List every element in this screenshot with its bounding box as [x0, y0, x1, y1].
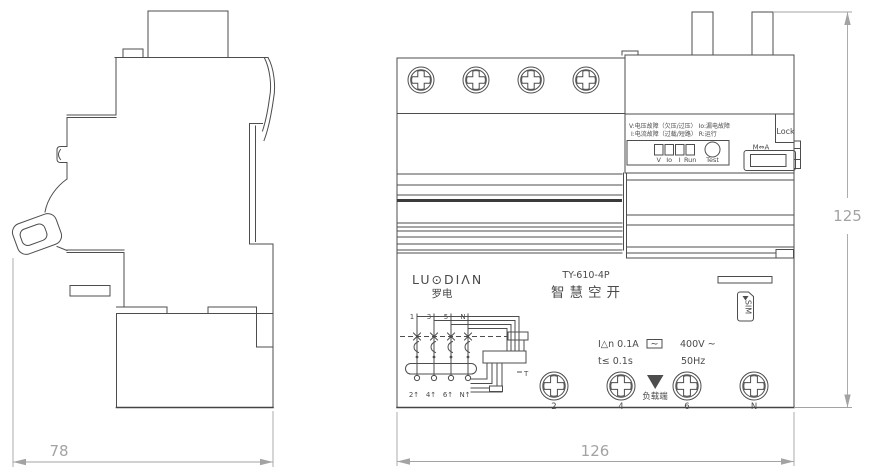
- dimension-78: 78: [13, 258, 273, 467]
- side-details: [57, 147, 273, 348]
- voltage-rating: 400V ~: [680, 339, 716, 350]
- terminal-screw-icon: [573, 67, 599, 93]
- dim-78-lines: [13, 258, 273, 467]
- led-label-io: Io: [666, 156, 672, 164]
- led-indicator-i: [676, 145, 685, 156]
- model-number: TY-610-4P: [561, 270, 610, 281]
- schematic-terminal-6: 6↑: [443, 391, 453, 399]
- bottom-terminal-label-4: 4: [618, 402, 623, 412]
- t-terminal-label: T: [523, 370, 529, 378]
- schematic-terminal-2: 2↑: [409, 391, 419, 399]
- handle-outer: [10, 211, 64, 257]
- test-button-label: Test: [705, 156, 719, 164]
- wave-type-symbol: ~: [651, 339, 659, 350]
- dim-height-front: 125: [833, 207, 862, 225]
- frequency-rating: 50Hz: [681, 356, 705, 367]
- schematic-arc-hooks: [414, 342, 470, 353]
- bottom-terminal-label-n: N: [751, 402, 757, 412]
- side-right-curve: [45, 58, 275, 213]
- load-side-marker: 负载端: [642, 375, 668, 402]
- load-side-label: 负载端: [642, 391, 668, 402]
- ratings-block: I△n 0.1A ~ 400V ~ t≤ 0.1s 50Hz: [598, 339, 716, 367]
- sim-label: SIM: [744, 300, 753, 314]
- trip-time-rating: t≤ 0.1s: [598, 356, 633, 367]
- mode-slider-knob: [751, 155, 787, 167]
- terminal-screw-icon: [540, 372, 568, 400]
- led-label-run: Run: [684, 156, 696, 164]
- bottom-terminal-label-2: 2: [551, 402, 556, 412]
- schematic-poles: [417, 314, 468, 375]
- residual-current-rating: I△n 0.1A: [598, 339, 639, 350]
- schematic-node: [433, 356, 436, 359]
- led-label-v: V: [656, 156, 661, 164]
- rocker-lines: [397, 173, 794, 258]
- test-button: [705, 142, 720, 157]
- led-indicator-run: [686, 145, 695, 156]
- breaker-drawing-svg: 78: [0, 0, 871, 473]
- schematic-node: [450, 356, 453, 359]
- dim-width-front: 126: [581, 442, 610, 460]
- front-body-outline: [397, 58, 794, 408]
- bottom-terminal-label-6: 6: [684, 402, 689, 412]
- schematic-terminal-circle: [414, 375, 419, 380]
- brand-block: LU⊙DIΛN 罗电 TY-610-4P 智慧空开: [412, 270, 625, 301]
- sim-slot-opening: [718, 277, 772, 284]
- load-triangle-icon: [647, 375, 664, 389]
- wiring-schematic: 1 3 5 N T 2↑ 4↑ 6↑: [400, 313, 529, 399]
- lock-track-icon: [794, 141, 801, 169]
- legend-line-2: I:电流故障（过载/短路） R:运行: [631, 130, 717, 138]
- trip-unit-box: [483, 351, 526, 363]
- terminal-screw-icon: [673, 372, 701, 400]
- terminal-screws-top: [408, 67, 599, 93]
- indicator-panel: V:电压故障（欠压/过压） Io:漏电故障 I:电流故障（过载/短路） R:运行…: [627, 122, 730, 165]
- schematic-terminal-circle: [431, 375, 436, 380]
- product-name: 智慧空开: [551, 285, 625, 301]
- current-transformer: [406, 364, 477, 375]
- module-details: [622, 12, 794, 114]
- handle-inner: [18, 222, 48, 247]
- schematic-node: [416, 356, 419, 359]
- technical-drawing-canvas: 78: [0, 0, 871, 473]
- led-indicator-v: [655, 145, 664, 156]
- dimension-126: 126: [397, 412, 794, 466]
- terminal-screw-icon: [408, 67, 434, 93]
- led-indicator-io: [665, 145, 674, 156]
- front-view-drawing: V:电压故障（欠压/过压） Io:漏电故障 I:电流故障（过载/短路） R:运行…: [397, 12, 862, 466]
- legend-line-1: V:电压故障（欠压/过压） Io:漏电故障: [629, 122, 730, 130]
- schematic-terminal-circle: [448, 375, 453, 380]
- lock-slider: Lock M⇔A: [744, 114, 801, 171]
- terminal-screw-icon: [518, 67, 544, 93]
- rocker-end-cap: [776, 250, 794, 259]
- schematic-terminal-nn: N↑: [459, 391, 470, 399]
- terminal-screw-icon: [740, 372, 768, 400]
- dimension-125: 125: [773, 12, 862, 408]
- schematic-terminal-4: 4↑: [426, 391, 436, 399]
- brand-logo: LU⊙DIΛN: [412, 272, 483, 287]
- schematic-terminal-circle: [465, 375, 470, 380]
- side-view-drawing: 78: [10, 11, 275, 467]
- brand-cn: 罗电: [432, 287, 453, 300]
- schematic-resistor: [490, 386, 503, 392]
- lock-label: Lock: [776, 127, 795, 136]
- side-outline: [67, 11, 273, 408]
- schematic-terminal-1: 1: [410, 313, 414, 321]
- terminal-screw-icon: [607, 372, 635, 400]
- rocker-area: [397, 173, 794, 258]
- terminal-screw-icon: [463, 67, 489, 93]
- breaker-handle: [10, 211, 64, 257]
- schematic-node: [467, 356, 470, 359]
- dim-width-side: 78: [49, 442, 68, 460]
- led-label-i: I: [679, 156, 681, 164]
- mode-slider-track: [744, 151, 796, 171]
- sim-slot: SIM: [718, 277, 772, 322]
